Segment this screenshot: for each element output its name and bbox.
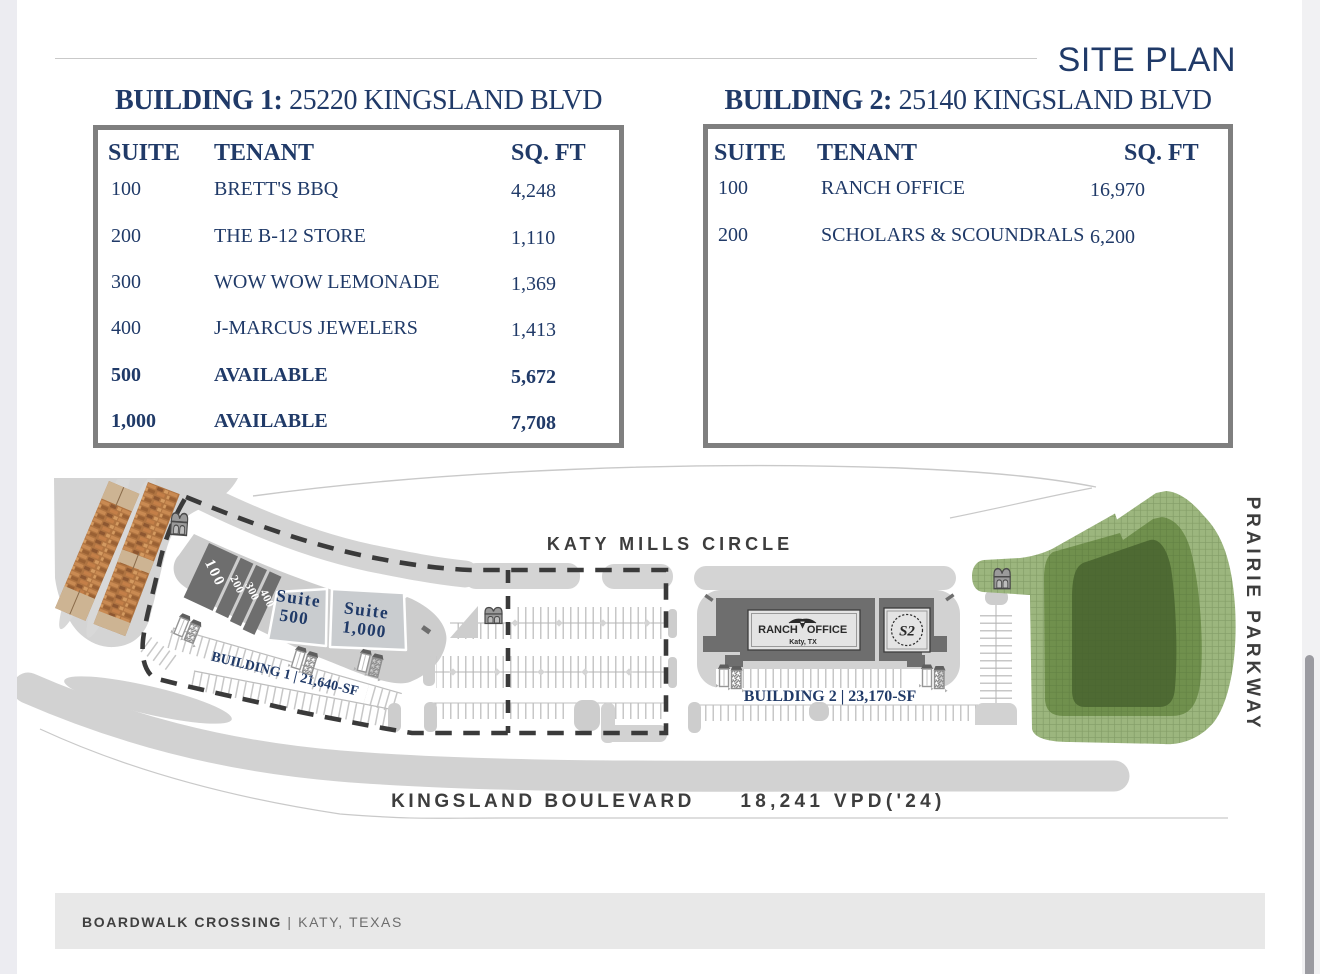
svg-text:PRAIRIE PARKWAY: PRAIRIE PARKWAY xyxy=(1242,497,1263,732)
svg-text:KINGSLAND BOULEVARD: KINGSLAND BOULEVARD xyxy=(391,791,695,812)
svg-text:OFFICE: OFFICE xyxy=(807,624,847,636)
svg-text:500: 500 xyxy=(278,605,310,629)
svg-text:KATY MILLS CIRCLE: KATY MILLS CIRCLE xyxy=(547,534,793,554)
svg-text:BUILDING 2 | 23,170-SF: BUILDING 2 | 23,170-SF xyxy=(744,688,917,705)
svg-text:RANCH: RANCH xyxy=(758,624,798,636)
svg-text:Katy, TX: Katy, TX xyxy=(789,639,817,646)
svg-text:S2: S2 xyxy=(899,624,915,640)
svg-text:18,241 VPD('24): 18,241 VPD('24) xyxy=(740,791,945,812)
